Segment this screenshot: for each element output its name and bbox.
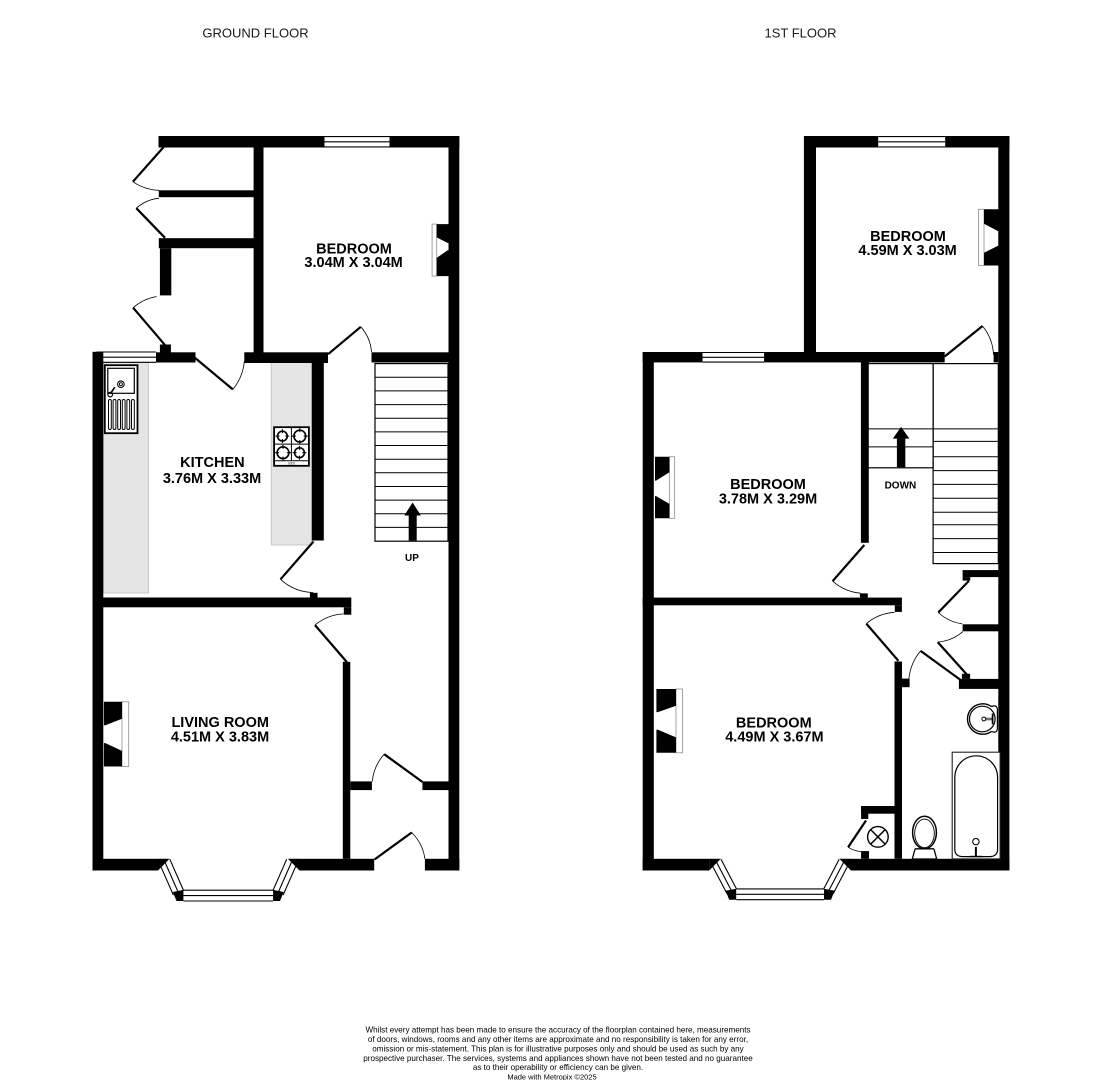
- svg-text:KITCHEN: KITCHEN: [180, 455, 244, 471]
- svg-text:1ST FLOOR: 1ST FLOOR: [764, 26, 836, 41]
- svg-text:DOWN: DOWN: [885, 481, 917, 492]
- svg-text:UP: UP: [405, 553, 419, 564]
- svg-text:Whilst every attempt has been: Whilst every attempt has been made to en…: [365, 1026, 750, 1035]
- svg-text:3.78M X 3.29M: 3.78M X 3.29M: [719, 491, 817, 507]
- svg-text:3.76M X 3.33M: 3.76M X 3.33M: [163, 471, 261, 487]
- svg-text:GROUND FLOOR: GROUND FLOOR: [202, 26, 308, 41]
- svg-text:4.59M X 3.03M: 4.59M X 3.03M: [858, 243, 956, 259]
- svg-text:omission or mis-statement. Thi: omission or mis-statement. This plan is …: [372, 1044, 744, 1053]
- svg-text:3.04M X 3.04M: 3.04M X 3.04M: [304, 255, 402, 271]
- svg-text:of doors, windows, rooms and a: of doors, windows, rooms and any other i…: [368, 1035, 748, 1044]
- svg-text:LIVING ROOM: LIVING ROOM: [171, 715, 268, 731]
- svg-text:0000: 0000: [288, 461, 295, 465]
- svg-text:4.51M X 3.83M: 4.51M X 3.83M: [171, 730, 269, 746]
- svg-text:as to their operability or eff: as to their operability or efficiency ca…: [473, 1063, 643, 1072]
- svg-text:4.49M X 3.67M: 4.49M X 3.67M: [725, 729, 823, 745]
- svg-text:prospective purchaser. The ser: prospective purchaser. The services, sys…: [363, 1054, 753, 1063]
- svg-text:Made with Metropix ©2025: Made with Metropix ©2025: [507, 1072, 596, 1080]
